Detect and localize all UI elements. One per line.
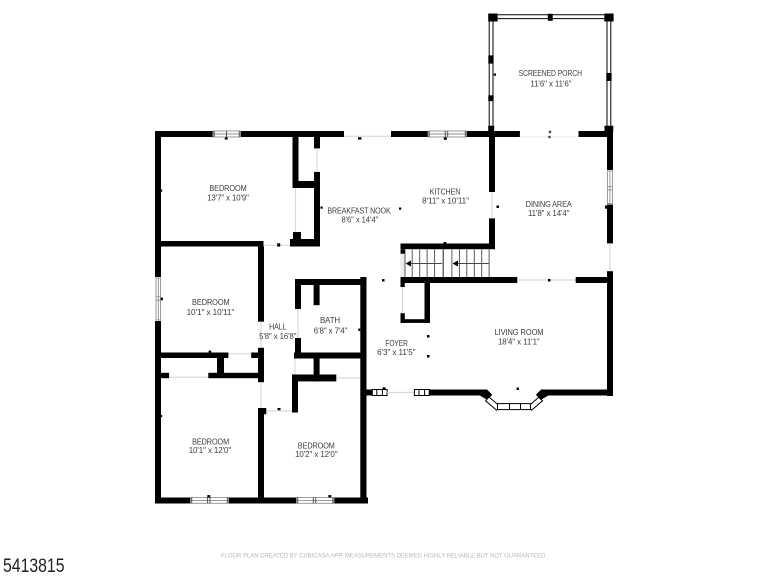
svg-text:6'3" x 11'5": 6'3" x 11'5": [377, 347, 415, 357]
svg-text:FLOOR PLAN CREATED BY CUBICASA: FLOOR PLAN CREATED BY CUBICASA APP. MEAS…: [221, 553, 547, 560]
svg-text:13'7" x 10'9": 13'7" x 10'9": [207, 193, 249, 203]
svg-text:10'1" x 10'11": 10'1" x 10'11": [187, 307, 235, 317]
svg-text:18'4" x 11'1": 18'4" x 11'1": [498, 336, 540, 346]
svg-text:10'2" x 12'0": 10'2" x 12'0": [295, 449, 338, 459]
svg-text:8'6" x 14'4": 8'6" x 14'4": [341, 215, 378, 225]
svg-text:HALL: HALL: [269, 322, 287, 332]
svg-text:11'6" x 11'6": 11'6" x 11'6": [530, 79, 571, 89]
svg-text:5413815: 5413815: [3, 555, 65, 576]
svg-text:5'8" x 16'8": 5'8" x 16'8": [259, 331, 297, 341]
svg-text:BEDROOM: BEDROOM: [192, 297, 230, 307]
svg-text:SCREENED PORCH: SCREENED PORCH: [519, 68, 582, 78]
svg-text:10'1" x 12'0": 10'1" x 12'0": [189, 445, 232, 455]
svg-text:11'8" x 14'4": 11'8" x 14'4": [528, 208, 570, 218]
svg-text:6'8" x 7'4": 6'8" x 7'4": [314, 326, 348, 336]
svg-text:BATH: BATH: [320, 315, 340, 325]
svg-text:BEDROOM: BEDROOM: [209, 183, 246, 193]
svg-text:8'11" x 10'11": 8'11" x 10'11": [422, 196, 469, 206]
